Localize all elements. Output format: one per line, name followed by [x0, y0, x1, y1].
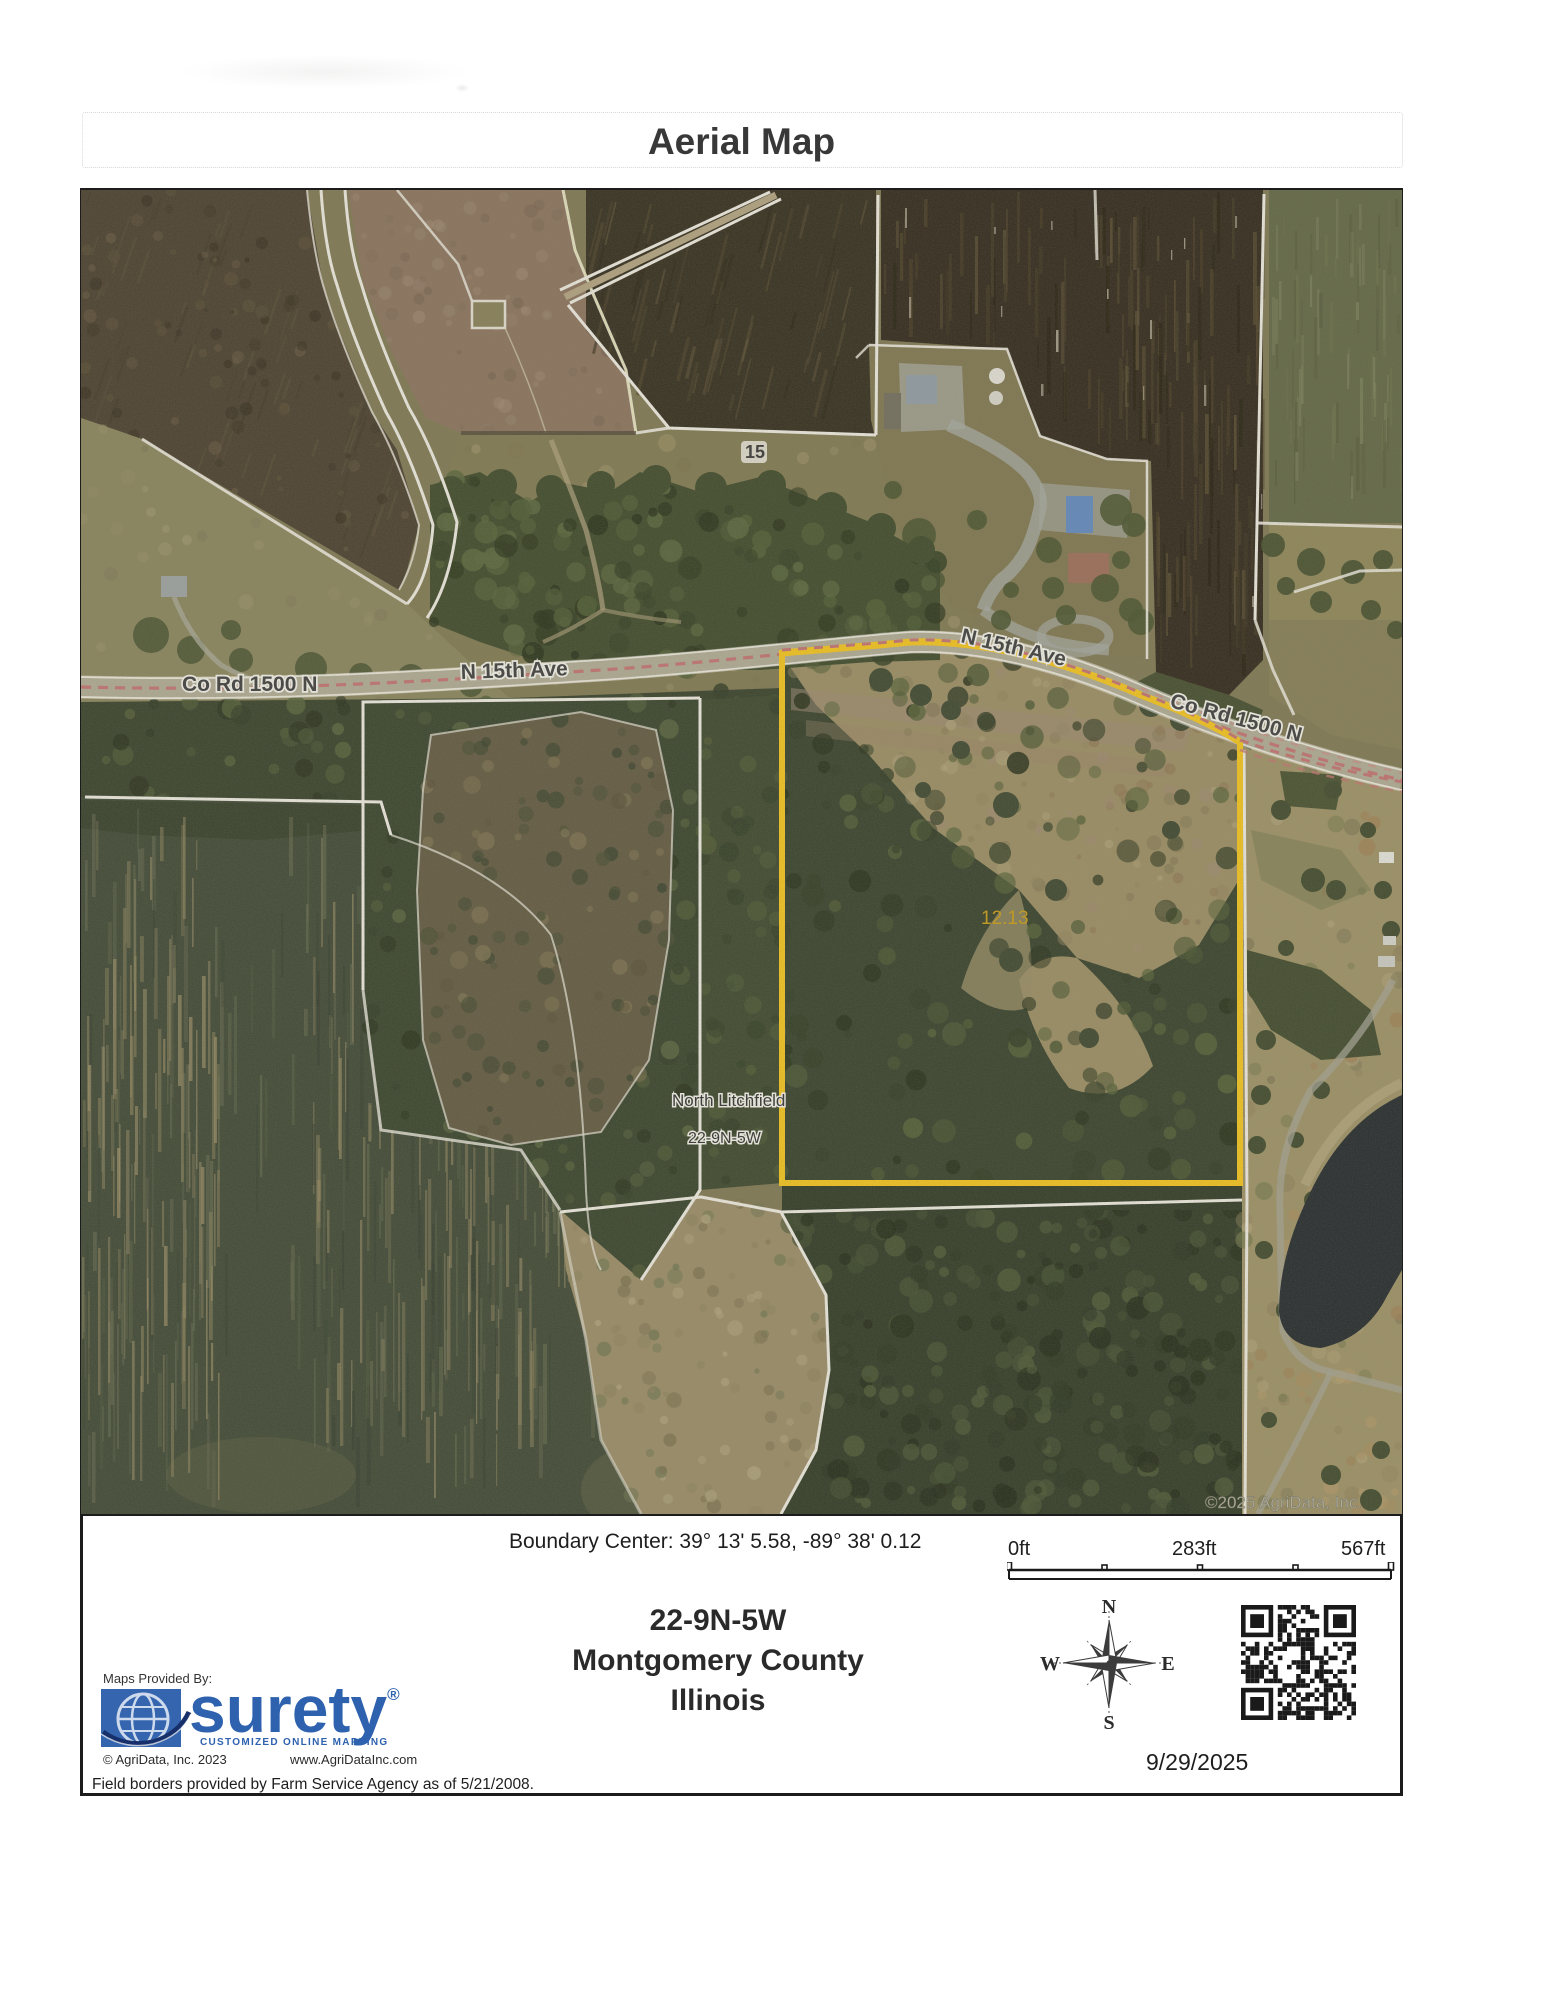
svg-text:S: S	[1103, 1712, 1114, 1734]
svg-text:N: N	[1102, 1596, 1117, 1618]
svg-text:E: E	[1161, 1653, 1174, 1675]
svg-text:W: W	[1040, 1653, 1060, 1675]
